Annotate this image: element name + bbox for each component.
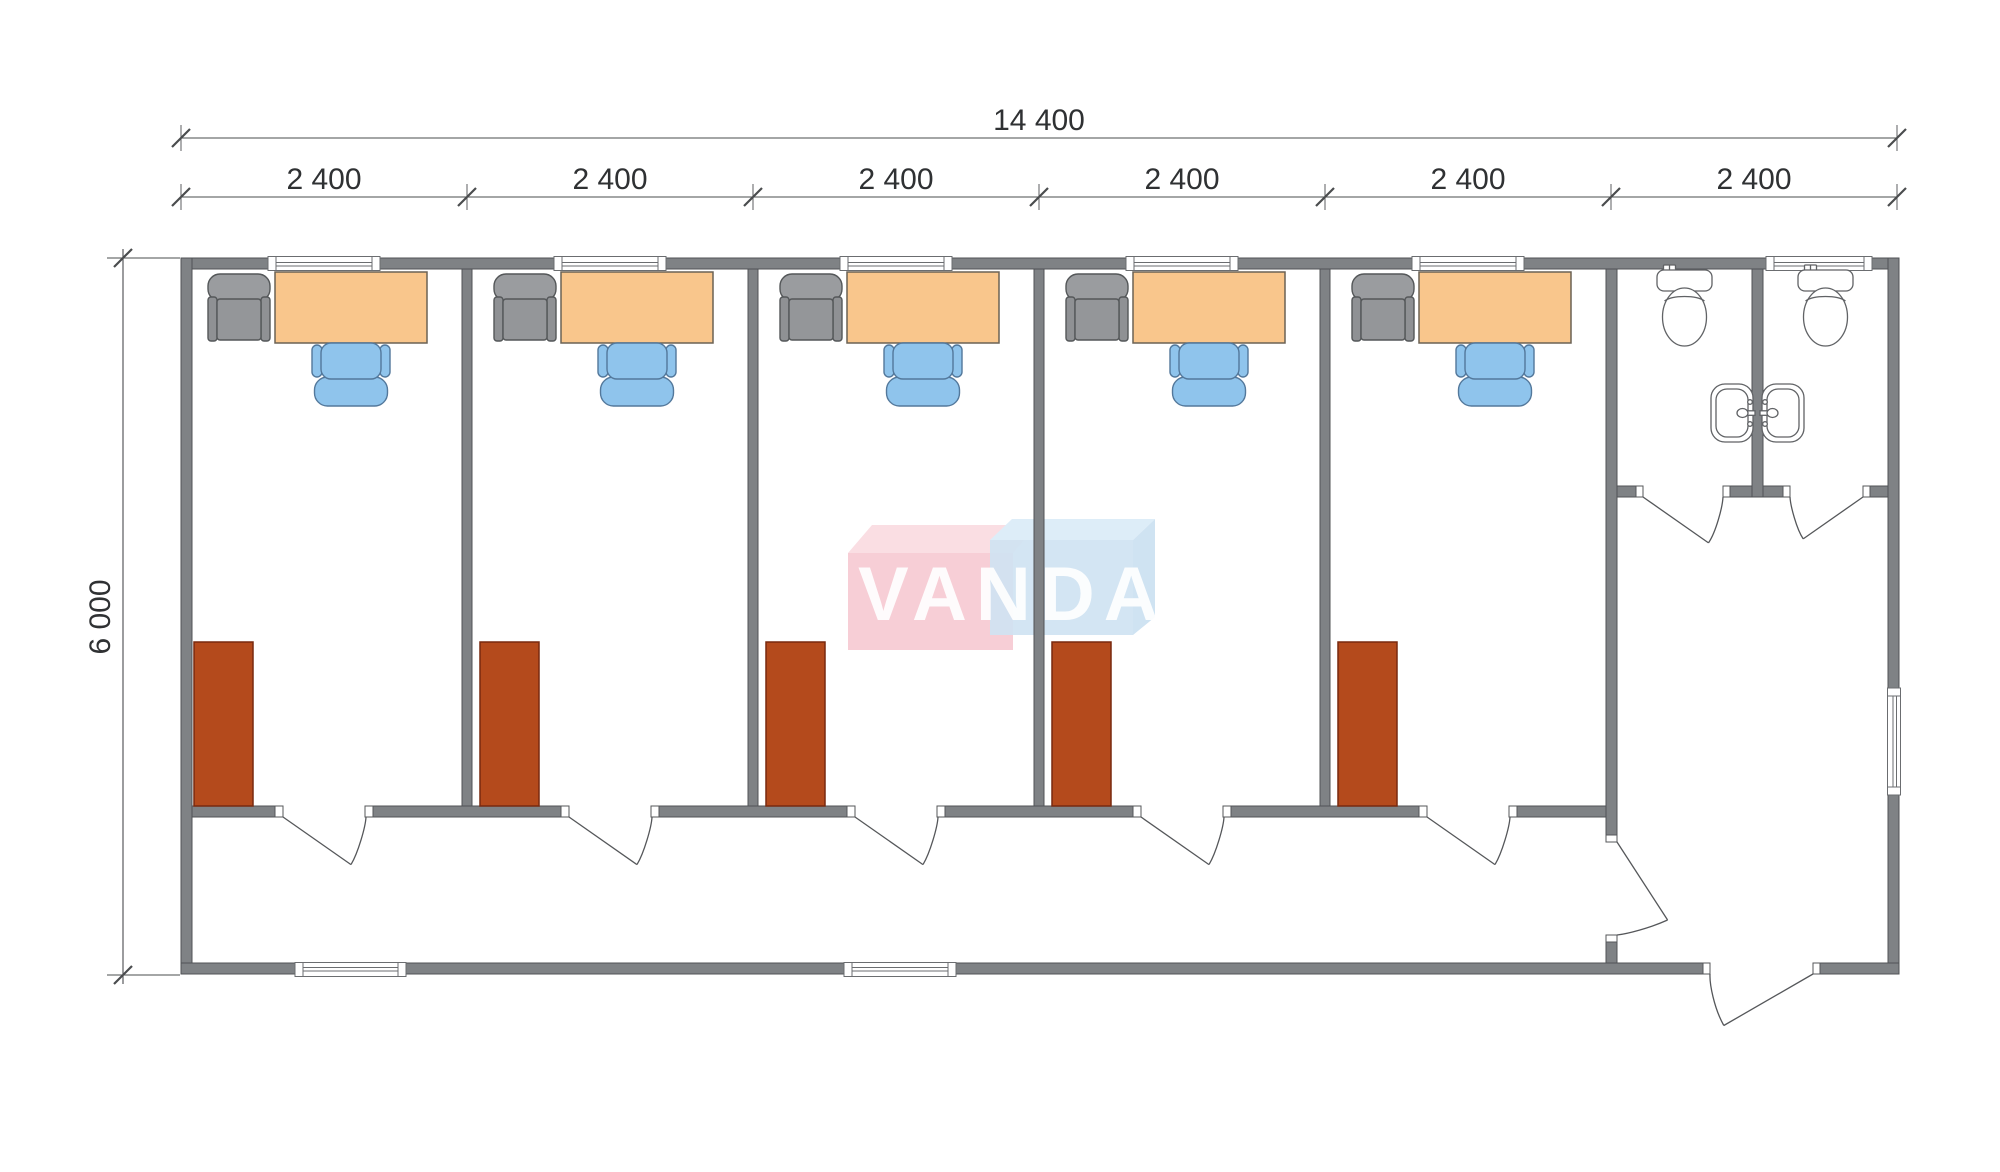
dimension-label-total-width: 14 400: [993, 104, 1085, 137]
dimension-label-bay-3: 2 400: [858, 163, 933, 196]
partition-wall-4: [1320, 269, 1330, 817]
window-right: [1888, 688, 1901, 795]
logo-blue-bevel: [990, 519, 1155, 540]
partition-wall-3: [1034, 269, 1044, 817]
corridor-wall-segment: [659, 806, 847, 817]
floor-plan-canvas: 14 400 2 400 2 400 2 400 2 400 2 400 2 4…: [0, 0, 2000, 1172]
sanitary-wall-upper: [1606, 269, 1617, 835]
exterior-wall-bottom-right: [1820, 963, 1899, 974]
window-bottom-2: [844, 963, 956, 977]
dimension-label-bay-1: 2 400: [286, 163, 361, 196]
dimension-label-bay-2: 2 400: [572, 163, 647, 196]
corridor-wall-segment: [373, 806, 561, 817]
partition-wall-2: [748, 269, 758, 817]
stall-wall-segment: [1870, 486, 1888, 497]
exterior-wall-top: [181, 258, 1899, 269]
stall-divider-wall: [1752, 269, 1763, 497]
sanitary-wall-lower: [1606, 942, 1617, 963]
window-top-2: [554, 257, 666, 271]
corridor-wall-segment: [1517, 806, 1606, 817]
window-top-4: [1126, 257, 1238, 271]
window-top-sanitary: [1766, 257, 1872, 271]
exterior-wall-right: [1888, 258, 1899, 974]
dimension-label-bay-4: 2 400: [1144, 163, 1219, 196]
exterior-wall-left: [181, 258, 192, 974]
window-top-5: [1412, 257, 1524, 271]
stall-wall-segment: [1617, 486, 1636, 497]
dimension-label-bay-6: 2 400: [1716, 163, 1791, 196]
partition-wall-1: [462, 269, 472, 817]
window-bottom-1: [295, 963, 406, 977]
logo-text: VANDA: [858, 552, 1168, 637]
vanda-watermark-logo: VANDA: [848, 519, 1168, 650]
window-top-3: [840, 257, 952, 271]
window-top-1: [268, 257, 380, 271]
dimension-label-height: 6 000: [84, 579, 117, 654]
dimension-label-bay-5: 2 400: [1430, 163, 1505, 196]
corridor-wall-segment: [1231, 806, 1419, 817]
floor-plan-drawing: 14 400 2 400 2 400 2 400 2 400 2 400 2 4…: [0, 0, 2000, 1172]
corridor-wall-segment: [945, 806, 1133, 817]
corridor-wall-segment: [192, 806, 275, 817]
